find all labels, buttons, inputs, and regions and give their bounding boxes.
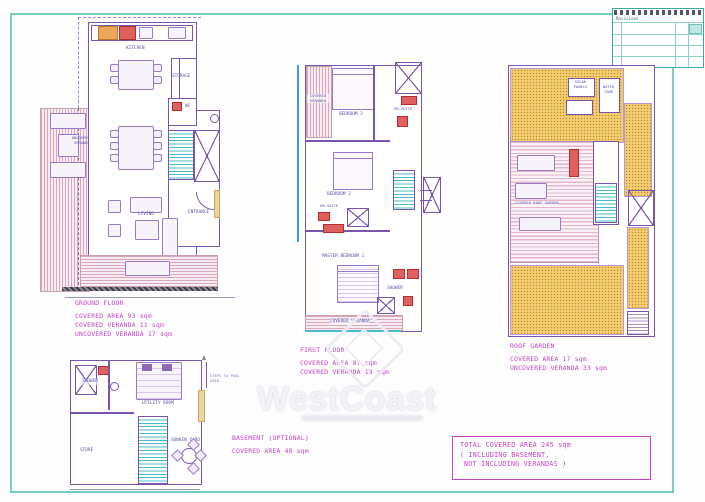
rg-louvre-panel [627, 311, 649, 335]
stat-line: COVERED AREA 48 sqm [232, 447, 309, 456]
solar-panels-label: SOLAR PANELS [569, 80, 592, 89]
bed [332, 68, 374, 110]
bbq-unit [569, 149, 579, 177]
dimension-line [70, 489, 200, 490]
title-block-row-line [613, 22, 703, 23]
ff-balcony-edge [297, 65, 299, 242]
direction-arrow [202, 355, 206, 360]
ff-bottom-veranda-label: COVERED VERANDA [330, 319, 370, 325]
outdoor-sofa [515, 183, 547, 199]
rg-uncovered-roof-area [510, 265, 624, 335]
chair [110, 64, 119, 72]
internal-wall [305, 230, 390, 232]
ff-veranda-edge [305, 330, 401, 332]
storage-closet [171, 58, 197, 102]
title-block-title: Revisions [616, 16, 639, 21]
living-label: LIVING [138, 212, 154, 218]
rg-pergola-label: COVERED ROOF GARDEN [515, 201, 558, 206]
first-floor-caption: FIRST FLOOR COVERED AREA 87 sqm COVERED … [300, 346, 389, 377]
bedroom3-label: BEDROOM 3 [339, 112, 363, 118]
rg-uncovered-roof-area [624, 103, 652, 197]
utility-unit [162, 364, 172, 371]
ensuite2-shower [347, 208, 369, 227]
armchair [108, 200, 121, 213]
total-line: TOTAL COVERED AREA 245 sqm [460, 441, 650, 451]
rg-uncovered-roof-area [627, 227, 649, 309]
internal-wall [373, 65, 375, 142]
planter [125, 261, 170, 276]
chair [153, 154, 162, 162]
title-block-header-band [614, 10, 702, 15]
sun-lounger [50, 162, 86, 178]
wc-label: WC [185, 104, 190, 110]
stat-line: COVERED VERANDA 13 sqm [300, 368, 389, 377]
outdoor-bench [519, 217, 561, 231]
wc-basin [172, 102, 182, 111]
stat-line: UNCOVERED VERANDA 17 sqm [75, 330, 172, 339]
bm-basin [110, 382, 119, 391]
total-line: NOT INCLUDING VERANDAS ) [460, 460, 650, 470]
rg-staircase [595, 183, 617, 223]
dining-table [118, 126, 154, 170]
sun-lounger [50, 113, 86, 129]
gf-staircase [168, 130, 194, 180]
roof-garden-caption: ROOF GARDEN COVERED AREA 17 sqm UNCOVERE… [510, 342, 607, 373]
kitchen-appliance [168, 27, 186, 39]
chair [153, 64, 162, 72]
store-label: STORE [80, 448, 93, 454]
coffee-table [135, 220, 159, 240]
outdoor-sofa [517, 155, 555, 171]
bedroom2-label: BEDROOM 2 [327, 192, 351, 198]
stat-line: UNCOVERED VERANDA 33 sqm [510, 364, 607, 373]
internal-wall [70, 412, 134, 414]
title-block-row-line [613, 34, 703, 35]
chair [110, 142, 119, 150]
ff-side-shaft [423, 177, 441, 213]
roof-garden-plan: SOLAR PANELS WATER TANK COVERED ROOF GAR… [505, 55, 660, 340]
kitchen-table [118, 60, 154, 90]
ff-void-shaft [395, 62, 422, 94]
internal-wall [305, 140, 390, 142]
ensuite-wc [397, 116, 408, 127]
entrance-label: ENTRANCE [188, 210, 209, 216]
chair [110, 76, 119, 84]
internal-wall [108, 360, 110, 410]
stat-line: COVERED AREA 17 sqm [510, 355, 607, 364]
basement-plan: SHOWER UTILITY ROOM STORE SUNKEN YARD ST… [58, 352, 243, 497]
plan-title: ROOF GARDEN [510, 342, 607, 351]
plan-title: GROUND FLOOR [75, 299, 172, 308]
master-bedroom-label: MASTER BEDROOM 1 [322, 254, 364, 260]
ff-side-veranda-label: COVERED VERANDA [307, 94, 329, 103]
sofa [130, 197, 162, 213]
basement-caption: BASEMENT (OPTIONAL) COVERED AREA 48 sqm [232, 434, 309, 456]
shower-basin [407, 269, 419, 279]
armchair [108, 224, 121, 237]
utility-room-label: UTILITY ROOM [142, 401, 174, 407]
kitchen-sink [139, 27, 153, 39]
retaining-wall-hatch [62, 287, 218, 291]
water-tank-label: WATER TANK [600, 85, 617, 94]
chair [153, 130, 162, 138]
gf-void-shaft [194, 130, 220, 182]
external-steps-rail [201, 362, 207, 388]
solar-panels-box2 [566, 100, 593, 115]
chair [153, 142, 162, 150]
chair [110, 130, 119, 138]
plan-title: FIRST FLOOR [300, 346, 389, 355]
ensuite2-wc [318, 212, 330, 221]
ground-floor-caption: GROUND FLOOR COVERED AREA 93 sqm COVERED… [75, 299, 172, 339]
kitchen-worktop [98, 26, 118, 40]
utility-unit [142, 364, 152, 371]
stat-line: COVERED VERANDA 11 sqm [75, 321, 172, 330]
ground-floor-plan: UNCOVERED VERANDA KITCHEN STORAGE WC [38, 14, 250, 299]
kitchen-label: KITCHEN [126, 46, 145, 52]
steps-to-pool-label: STEPS TO POOL AREA [210, 374, 244, 383]
ensuite-basin [401, 96, 417, 105]
title-block-column-line [675, 22, 676, 67]
plan-title: BASEMENT (OPTIONAL) [232, 434, 309, 443]
corner-sofa [162, 218, 178, 260]
external-steps [198, 390, 205, 422]
chair [153, 76, 162, 84]
bm-shower-label: SHOWER [82, 379, 98, 385]
drawing-sheet: Revisions UNCOVERED VERANDA KITCHEN [0, 0, 705, 502]
stat-line: COVERED AREA 87 sqm [300, 359, 389, 368]
kitchen-hob [119, 26, 136, 40]
shower-wc [403, 296, 413, 306]
tick-line [420, 190, 432, 191]
title-block-row-line [613, 45, 703, 46]
ensuite2-label: EN-SUITE [320, 204, 338, 209]
ensuite3-label: EN-SUITE [394, 107, 412, 112]
boiler-symbol [210, 114, 219, 123]
entrance-door [214, 190, 220, 218]
ensuite2-basin [323, 224, 344, 233]
storage-label: STORAGE [172, 74, 191, 80]
tick-line [420, 200, 432, 201]
total-area-box: TOTAL COVERED AREA 245 sqm ( INCLUDING B… [452, 436, 651, 480]
shower-tray [377, 297, 395, 314]
bed [333, 152, 373, 190]
rg-void-shaft [628, 190, 654, 226]
first-floor-plan: COVERED VERANDA BEDROOM 3 EN-SUITE BEDRO… [275, 58, 450, 343]
chair [110, 154, 119, 162]
bm-staircase [138, 416, 168, 484]
ff-staircase [393, 170, 415, 210]
dimension-line [65, 297, 235, 298]
shower-basin [393, 269, 405, 279]
total-line: ( INCLUDING BASEMENT, [460, 451, 650, 461]
stat-line: COVERED AREA 93 sqm [75, 312, 172, 321]
title-block-highlight-cell [689, 24, 702, 34]
shower-label: SHOWER [387, 286, 403, 292]
bed [337, 265, 379, 303]
